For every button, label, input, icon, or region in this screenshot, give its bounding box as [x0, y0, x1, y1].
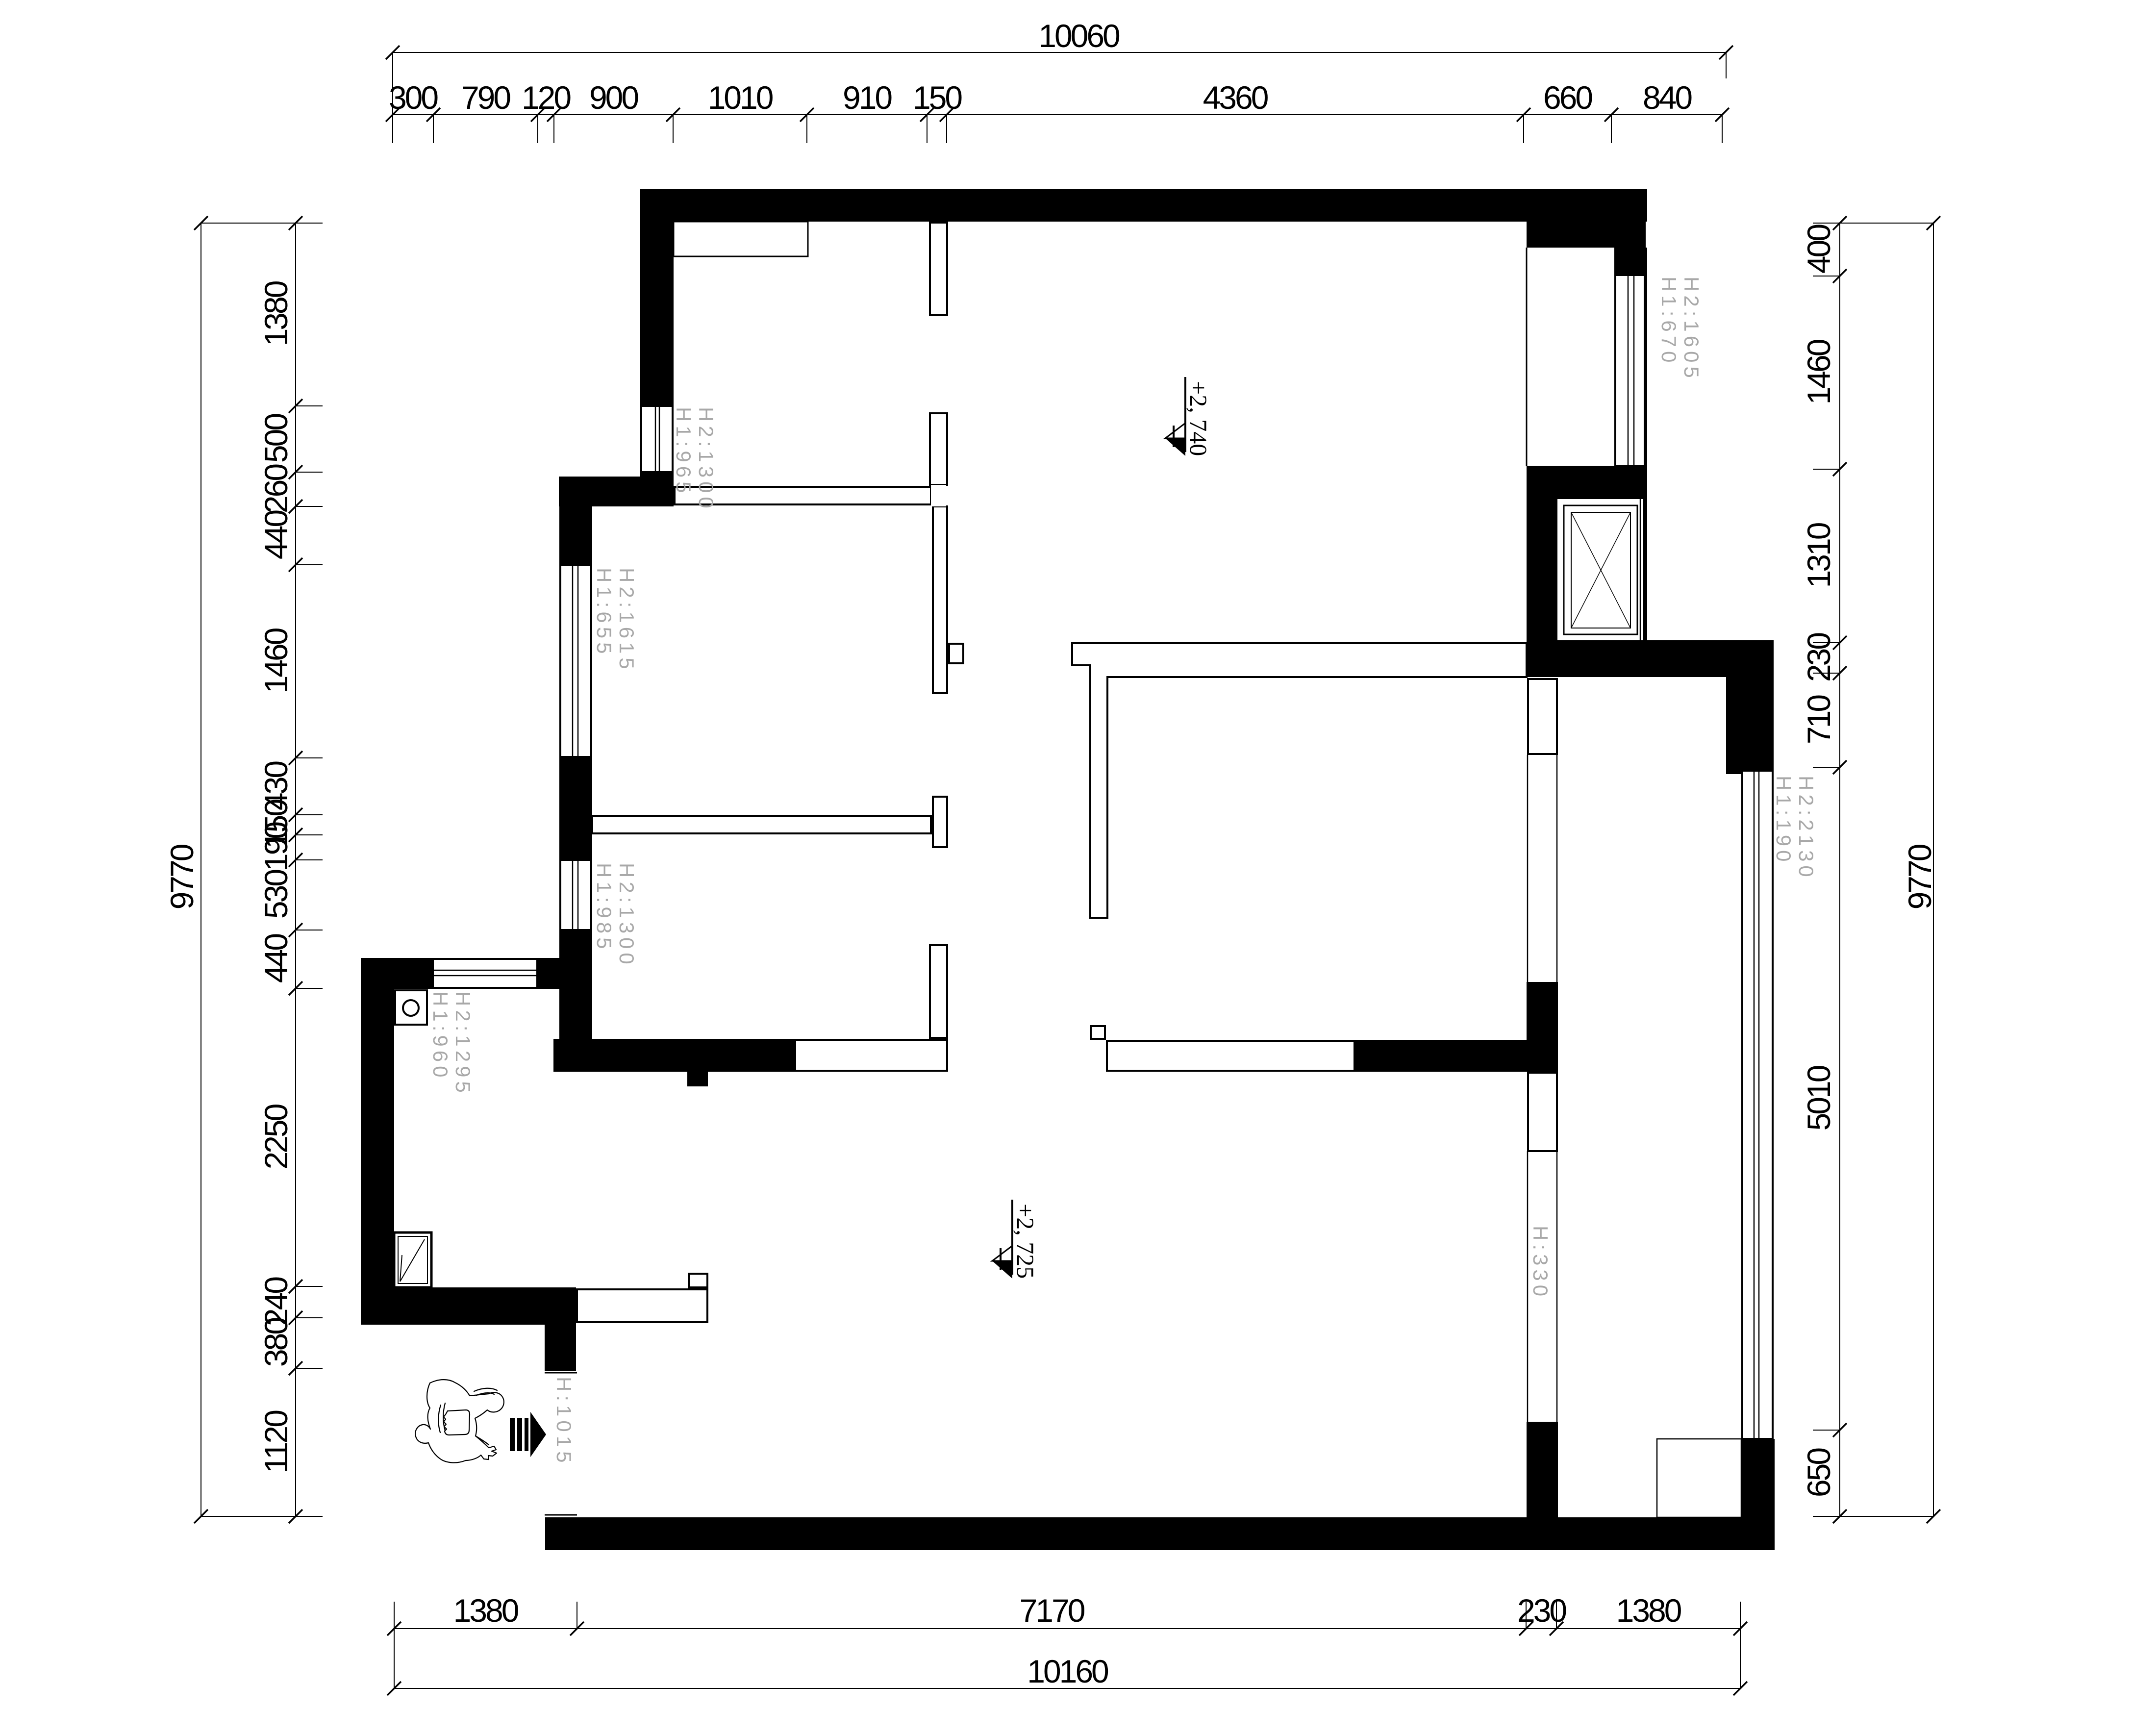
svg-text:440: 440: [258, 510, 294, 559]
svg-text:1380: 1380: [1616, 1592, 1681, 1629]
svg-text:790: 790: [461, 79, 510, 116]
svg-text:H1:655: H1:655: [593, 568, 616, 657]
svg-text:230: 230: [1801, 633, 1837, 682]
svg-text:440: 440: [258, 934, 294, 983]
svg-text:530: 530: [258, 870, 294, 919]
svg-text:H1:670: H1:670: [1657, 277, 1680, 366]
svg-text:910: 910: [843, 79, 892, 116]
svg-text:380: 380: [258, 1318, 294, 1367]
svg-text:7170: 7170: [1020, 1592, 1085, 1629]
svg-text:H1:190: H1:190: [1772, 776, 1795, 865]
svg-text:+2, 725: +2, 725: [1012, 1204, 1039, 1279]
svg-text:H2:1300: H2:1300: [695, 407, 718, 512]
svg-text:10160: 10160: [1027, 1653, 1108, 1689]
svg-text:650: 650: [1801, 1448, 1837, 1497]
svg-text:H2:1300: H2:1300: [615, 863, 638, 968]
svg-text:1460: 1460: [258, 628, 294, 693]
svg-text:H:1015: H:1015: [552, 1377, 576, 1466]
svg-text:1120: 1120: [258, 1410, 294, 1473]
svg-text:H1:965: H1:965: [672, 407, 695, 497]
svg-text:500: 500: [258, 414, 294, 463]
svg-text:300: 300: [389, 79, 438, 116]
svg-text:710: 710: [1801, 695, 1837, 744]
svg-text:+2, 740: +2, 740: [1185, 381, 1212, 456]
svg-text:H2:1615: H2:1615: [615, 568, 638, 673]
svg-text:9770: 9770: [164, 844, 200, 909]
svg-text:1380: 1380: [258, 281, 294, 346]
svg-text:1010: 1010: [708, 79, 773, 116]
svg-text:H:330: H:330: [1529, 1226, 1552, 1300]
svg-text:5010: 5010: [1801, 1065, 1837, 1131]
svg-text:H2:1605: H2:1605: [1680, 277, 1703, 382]
svg-text:900: 900: [589, 79, 638, 116]
svg-text:H1:960: H1:960: [429, 991, 452, 1081]
svg-text:190: 190: [258, 822, 294, 871]
svg-text:4360: 4360: [1203, 79, 1268, 116]
svg-text:H1:985: H1:985: [593, 863, 616, 953]
svg-text:1460: 1460: [1801, 339, 1837, 404]
svg-text:H2:2130: H2:2130: [1795, 776, 1818, 881]
svg-text:230: 230: [1517, 1592, 1566, 1629]
svg-text:400: 400: [1801, 225, 1837, 274]
svg-text:120: 120: [522, 79, 571, 116]
svg-text:9770: 9770: [1902, 844, 1938, 909]
svg-text:2250: 2250: [258, 1104, 294, 1169]
svg-text:10060: 10060: [1038, 18, 1120, 54]
svg-text:1310: 1310: [1801, 523, 1837, 588]
svg-text:1380: 1380: [453, 1592, 519, 1629]
svg-text:260: 260: [258, 464, 294, 513]
svg-text:H2:1295: H2:1295: [451, 991, 475, 1097]
svg-text:660: 660: [1543, 79, 1592, 116]
svg-text:840: 840: [1643, 79, 1692, 116]
svg-text:150: 150: [913, 79, 962, 116]
